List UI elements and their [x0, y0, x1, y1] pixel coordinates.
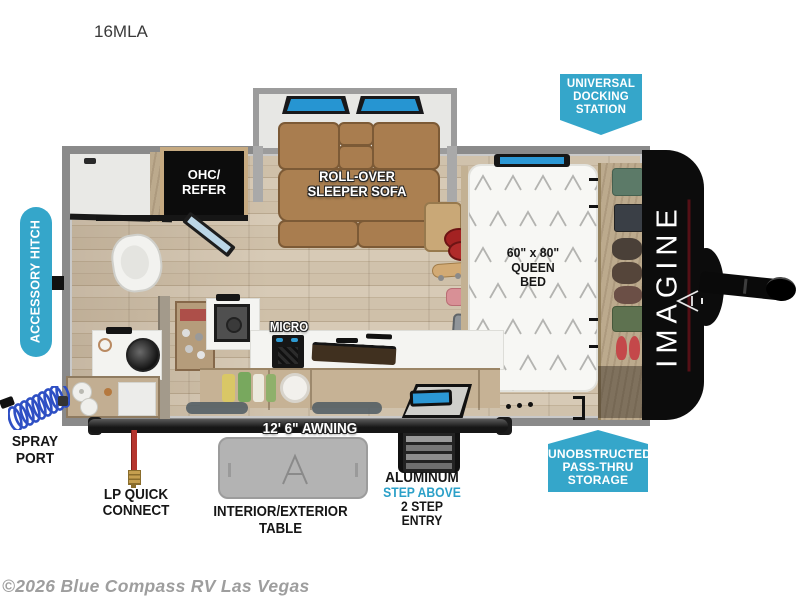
slide-jamb	[253, 146, 263, 202]
spray-connector	[58, 396, 68, 406]
bed-label-line1: 60" x 80"	[472, 246, 594, 261]
flip-flop	[616, 336, 627, 360]
skateboard-wheel	[438, 275, 444, 281]
micro-label: MICRO	[260, 320, 317, 334]
floorplan-image: 16MLA OHC/ REFER ROLL-OVER SLEEPER SOFA	[0, 0, 800, 600]
table-print	[355, 463, 358, 477]
counter-edge	[96, 215, 248, 221]
accessory-hitch-label: ACCESSORY HITCH	[30, 208, 43, 356]
dot	[528, 402, 533, 407]
bed-label-line3: BED	[472, 275, 594, 290]
docking-badge-line3: STATION	[560, 104, 642, 117]
sofa-back-cushion	[278, 122, 340, 170]
boots	[612, 238, 642, 260]
entry-steps	[398, 433, 460, 473]
passthru-storage-badge: UNOBSTRUCTED PASS-THRU STORAGE	[548, 430, 648, 492]
lp-label-line2: CONNECT	[96, 503, 175, 519]
badge-pointer	[560, 120, 642, 135]
docking-badge-line2: DOCKING	[560, 91, 642, 104]
cutting-board	[266, 374, 276, 402]
tongue-seam	[743, 279, 748, 294]
burner	[291, 338, 298, 342]
cutting-board	[253, 374, 264, 402]
dot	[506, 404, 511, 409]
entry-label-line3: 2 STEP ENTRY	[382, 500, 461, 528]
docking-station-badge: UNIVERSAL DOCKING STATION	[560, 74, 642, 135]
window-glass	[500, 157, 564, 164]
grand-design-logo-icon	[275, 450, 315, 490]
entry-label-line1: ALUMINUM	[382, 470, 461, 486]
lp-hose	[131, 430, 137, 472]
docking-badge-line1: UNIVERSAL	[560, 78, 642, 91]
flip-flop	[629, 336, 640, 360]
bed-label-line2: QUEEN	[472, 261, 594, 276]
pantry-box	[180, 309, 206, 321]
cabinet-seam	[310, 370, 312, 410]
step	[406, 445, 452, 451]
sofa-front-cushion	[278, 220, 359, 248]
passthru-handle	[572, 396, 585, 420]
awning-label: 12' 6" AWNING	[220, 420, 400, 437]
lp-label-line1: LP QUICK	[96, 487, 175, 503]
slide-jamb	[447, 146, 457, 202]
cabinet-seam	[478, 370, 480, 410]
dot	[517, 403, 522, 408]
ohc-refer-cabinet: OHC/ REFER	[160, 147, 248, 221]
stove	[272, 335, 304, 368]
grand-design-logo-icon	[674, 288, 704, 314]
window	[282, 96, 350, 114]
model-title: 16MLA	[94, 22, 148, 42]
bottle	[185, 345, 193, 353]
shoes	[614, 286, 642, 304]
shower	[70, 154, 160, 220]
step	[406, 454, 452, 460]
badge-pointer	[548, 430, 648, 444]
ohc-label-line2: REFER	[164, 182, 244, 197]
stored-box	[614, 204, 644, 232]
step-tread	[410, 389, 453, 406]
kitchen-sink	[214, 304, 250, 342]
accessory-hitch-badge: ACCESSORY HITCH	[20, 207, 52, 357]
sofa-back-cushion	[338, 122, 374, 146]
counter-handle	[366, 334, 392, 340]
sofa-back-cushion	[372, 122, 440, 170]
spray-label-line1: SPRAY	[8, 434, 61, 451]
cutting-board	[222, 374, 235, 402]
shower-head-icon	[84, 158, 96, 164]
sofa-label-line2: SLEEPER SOFA	[283, 184, 430, 199]
step	[406, 436, 452, 442]
bottle	[195, 333, 203, 341]
stored-clothes	[612, 306, 646, 332]
ohc-label-line1: OHC/	[164, 167, 244, 182]
passthru-shadow	[598, 366, 646, 418]
sofa-back-cushion	[338, 145, 374, 170]
vanity-sink	[126, 338, 160, 372]
sofa-label-line1: ROLL-OVER	[283, 169, 430, 184]
brand-name: IMAGINE	[652, 199, 691, 371]
toilet-seat	[119, 244, 151, 282]
window-glass	[361, 99, 419, 111]
burner	[276, 338, 283, 342]
towels	[118, 382, 156, 416]
cutting-board	[238, 372, 251, 402]
window	[356, 96, 424, 114]
brand-graphic: IMAGINE	[652, 156, 691, 416]
sink-drain	[226, 317, 242, 333]
window-glass	[287, 99, 345, 111]
exterior-table	[218, 437, 368, 499]
window	[494, 154, 570, 167]
boots	[612, 262, 642, 284]
table-print	[228, 463, 231, 477]
bottle	[197, 351, 205, 359]
toilet-paper	[80, 398, 98, 416]
kitchen-faucet	[216, 294, 240, 301]
floor-mat	[312, 402, 382, 414]
hitch-receiver	[52, 276, 64, 290]
spray-label-line2: PORT	[8, 451, 61, 468]
vanity-faucet	[106, 327, 132, 334]
stove-grate	[278, 347, 298, 364]
spray-port-hose-icon	[8, 386, 70, 430]
entry-label-line2: STEP ABOVE	[382, 486, 461, 500]
floor-mat	[186, 402, 248, 414]
passthru-badge-line3: STORAGE	[548, 474, 648, 487]
watermark: ©2026 Blue Compass RV Las Vegas	[2, 576, 310, 597]
bowl	[280, 373, 310, 403]
stored-blanket	[612, 168, 644, 196]
table-label: INTERIOR/EXTERIOR TABLE	[208, 503, 353, 537]
toilet-paper-core	[79, 389, 84, 394]
vanity-accessory	[98, 338, 112, 352]
cabinet-knob	[104, 388, 112, 396]
bottle	[182, 329, 190, 337]
